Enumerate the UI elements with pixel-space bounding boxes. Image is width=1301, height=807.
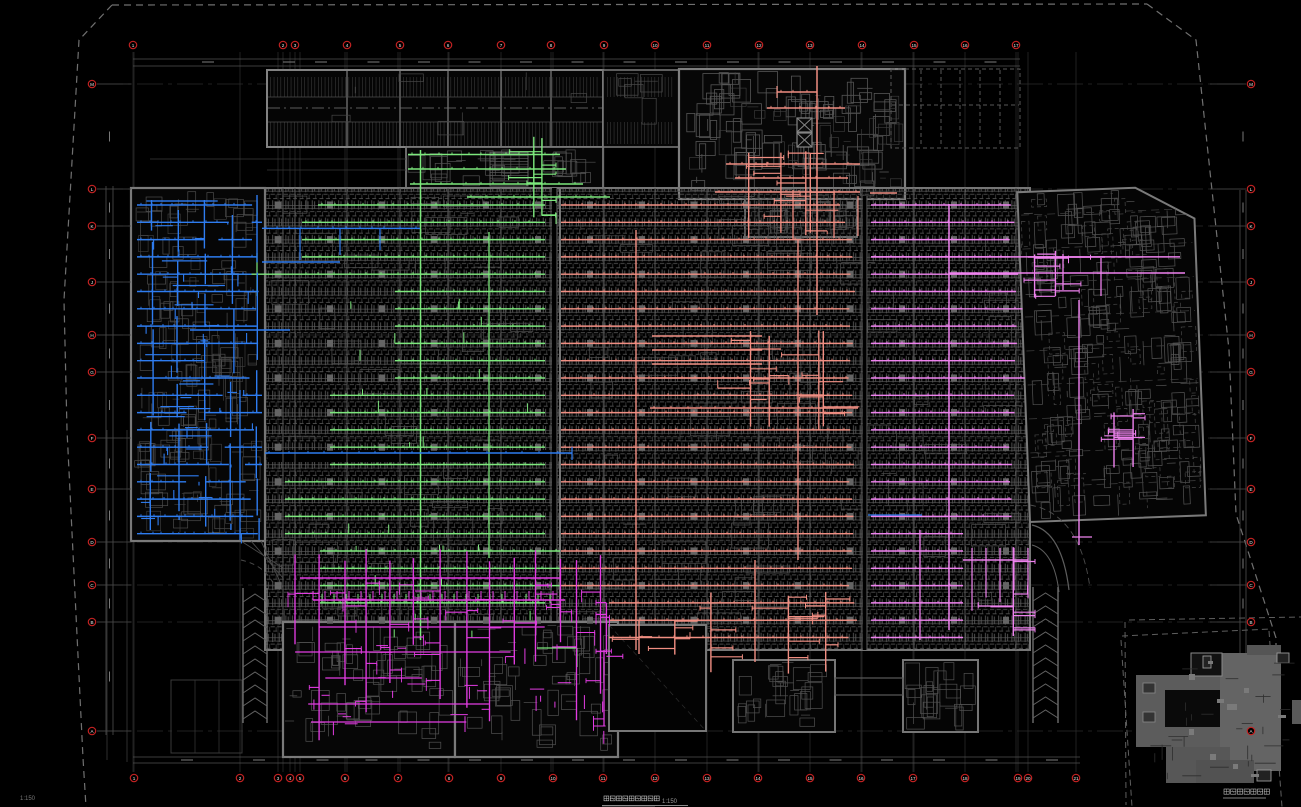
svg-text:M: M	[90, 82, 94, 87]
svg-text:3: 3	[294, 43, 297, 48]
svg-text:F: F	[1250, 436, 1253, 441]
svg-text:11: 11	[601, 776, 606, 781]
svg-text:14: 14	[859, 43, 865, 48]
svg-text:19: 19	[1015, 776, 1021, 781]
svg-text:13: 13	[704, 776, 710, 781]
svg-text:20: 20	[1025, 776, 1031, 781]
svg-text:21: 21	[1073, 776, 1079, 781]
svg-text:11: 11	[705, 43, 710, 48]
svg-text:9: 9	[603, 43, 606, 48]
svg-text:2: 2	[282, 43, 285, 48]
svg-text:10: 10	[652, 43, 658, 48]
svg-text:10: 10	[550, 776, 556, 781]
svg-text:6: 6	[344, 776, 347, 781]
svg-text:15: 15	[807, 776, 813, 781]
svg-text:E: E	[1249, 487, 1252, 492]
svg-text:16: 16	[858, 776, 864, 781]
svg-text:9: 9	[500, 776, 503, 781]
svg-text:B: B	[90, 620, 93, 625]
svg-text:L: L	[91, 187, 94, 192]
svg-text:12: 12	[756, 43, 762, 48]
svg-text:5: 5	[299, 776, 302, 781]
svg-text:8: 8	[550, 43, 553, 48]
svg-text:J: J	[1250, 280, 1252, 285]
svg-text:H: H	[1249, 333, 1252, 338]
svg-text:H: H	[90, 333, 93, 338]
svg-text:G: G	[1249, 370, 1253, 375]
svg-text:16: 16	[962, 43, 968, 48]
svg-text:B: B	[1249, 620, 1252, 625]
svg-text:E: E	[90, 487, 93, 492]
svg-text:1:150: 1:150	[662, 799, 678, 805]
svg-text:1:150: 1:150	[20, 796, 36, 802]
svg-text:L: L	[1250, 187, 1253, 192]
svg-text:M: M	[1249, 82, 1253, 87]
svg-text:4: 4	[346, 43, 349, 48]
svg-text:2: 2	[239, 776, 242, 781]
svg-text:14: 14	[755, 776, 761, 781]
svg-text:G: G	[90, 370, 94, 375]
svg-text:1: 1	[132, 43, 135, 48]
svg-text:1: 1	[133, 776, 136, 781]
svg-text:7: 7	[397, 776, 400, 781]
svg-text:5: 5	[399, 43, 402, 48]
svg-text:18: 18	[962, 776, 968, 781]
svg-text:15: 15	[911, 43, 917, 48]
svg-text:7: 7	[500, 43, 503, 48]
svg-text:6: 6	[447, 43, 450, 48]
svg-text:17: 17	[910, 776, 916, 781]
svg-text:12: 12	[652, 776, 658, 781]
svg-text:F: F	[91, 436, 94, 441]
svg-text:8: 8	[448, 776, 451, 781]
svg-text:3: 3	[277, 776, 280, 781]
svg-text:J: J	[91, 280, 93, 285]
svg-text:13: 13	[807, 43, 813, 48]
svg-text:17: 17	[1013, 43, 1019, 48]
svg-text:4: 4	[289, 776, 292, 781]
